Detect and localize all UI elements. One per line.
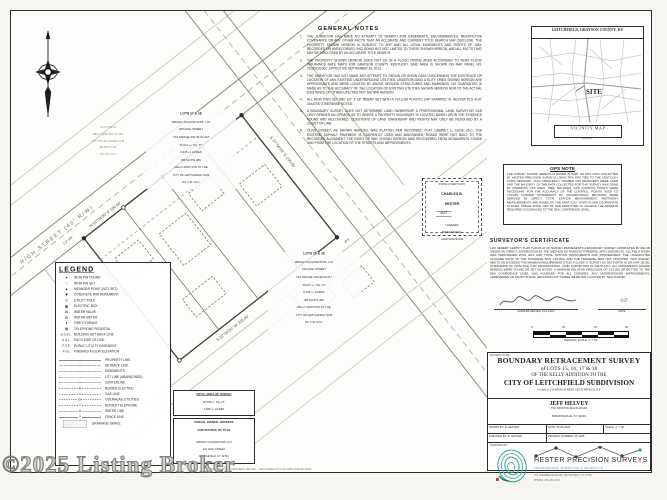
firm-name: HESTER PRECISION SURVEYS xyxy=(534,457,648,464)
certificate-body: I DO HEREBY CERTIFY THAT THIS PLAT OF SU… xyxy=(490,247,650,280)
gps-note-body: THE SURVEY SHOWN HEREON IS BASED IN PART… xyxy=(507,173,618,212)
firm-phone: PHONE: 270-230-7347 xyxy=(534,479,667,482)
fingerprint-logo-icon xyxy=(493,448,531,484)
bearing-front-left: N 52°04'00" E 100.00' xyxy=(88,200,122,228)
title-line-4: CITY OF LEITCHFIELD SUBDIVISION xyxy=(488,379,650,387)
title-line-2: of LOTS 15, 16, 17 & 18 xyxy=(488,366,650,372)
north-arrow-icon xyxy=(28,28,68,120)
title-line-3: OF THE KELLY ADDITION TO THE xyxy=(488,373,650,378)
legend-swale-row: DRAINAGE SWALE xyxy=(59,420,171,428)
watermark: ©2025 Listing Broker xyxy=(2,452,236,478)
project-number-cell: PROJECT NUMBER: 25-1085 xyxy=(547,433,650,442)
parcel-block-lots-15-16: LOTS 15 & 16 WRIGHT ACQUISITIONS, LLC 21… xyxy=(268,252,360,329)
street-label: HIGH STREET (40' R/W) xyxy=(19,204,95,265)
legend: LEGEND ●IRON PIN FOUND ○IRON PIN SET ▲ME… xyxy=(55,262,171,466)
signature-icon xyxy=(498,294,578,308)
total-area-box: TOTAL AREA OF SURVEY 30,030 +/- SQ. FT. … xyxy=(173,390,255,416)
vicinity-map: LEITCHFIELD, GRAYSON COUNTY, KY SITE VIC… xyxy=(531,26,644,146)
firm-address: 217 COMMERCE DRIVE, LEITCHFIELD, KY 4275… xyxy=(534,474,667,477)
signer-name: CHARLES HESTER, PLS #4147 xyxy=(494,310,578,314)
vicinity-scale-note: ( N.T.S. ) xyxy=(572,137,602,141)
general-notes-title: GENERAL NOTES xyxy=(318,26,482,32)
client-addr-1: 752 WINSTON DAVIS ROAD xyxy=(488,407,650,411)
vicinity-streets: SITE xyxy=(532,39,641,123)
scale-caption: GRAPHIC SCALE: 1" = 30' xyxy=(533,339,629,343)
parcel-block-adjoiner: LOTS 19 & 20 KELLY ADDITION TO THE CITY … xyxy=(78,126,138,160)
client-addr-2: BROWNSVILLE, KY 42210 xyxy=(488,415,650,419)
date-label: DATE xyxy=(598,310,646,314)
vicinity-header: LEITCHFIELD, GRAYSON COUNTY, KY xyxy=(532,27,643,39)
date-value: 6/25 xyxy=(604,298,644,309)
project-name-label: PROJECT NAME: xyxy=(490,354,652,357)
bearing-side-right: S 37°56'00" E 150.00' xyxy=(269,135,297,169)
gps-note: GPS NOTE THE SURVEY SHOWN HEREON IS BASE… xyxy=(503,164,622,225)
title-line-5: located at 210 HIGH STREET, LEITCHFIELD,… xyxy=(488,388,650,392)
parcel-block-lots-17-18: LOTS 17 & 18 WRIGHT ACQUISITIONS, LLC 20… xyxy=(146,112,236,189)
drawn-by-cell: DRAWN BY: B. HESTER xyxy=(488,424,547,433)
scale-cell: SCALE: 1" = 30' xyxy=(604,424,650,433)
general-note: 1. THE SURVEYOR HAS MADE NO ATTEMPT TO S… xyxy=(300,35,482,56)
survey-plat-sheet: HIGH STREET (40' R/W) xyxy=(0,0,667,500)
title-block: PROJECT NAME: BOUNDARY RETRACEMENT SURVE… xyxy=(487,352,651,471)
general-note: 5. A BOUNDARY SURVEY DOES NOT DETERMINE … xyxy=(300,109,482,126)
general-note: 4. ALL IRON PINS SET ARE 1/2" X 18" REBA… xyxy=(300,98,482,106)
title-line-1: BOUNDARY RETRACEMENT SURVEY xyxy=(488,356,650,365)
graphic-scale: 0' 30' 60' 90' GRAPHIC SCALE: 1" = 30' xyxy=(533,326,629,347)
checked-by-cell: CHECKED BY: B. HESTER xyxy=(488,433,547,442)
legend-title: LEGEND xyxy=(59,265,171,273)
pin-label-1: 1/2" IPF xyxy=(62,235,74,246)
general-note: 6. OLIVE STREET, AS SHOWN HEREON, WAS PL… xyxy=(300,129,482,146)
footer-file-path: K:\PROJECTS\25-1085 JEFF HELVEY - LEITCH… xyxy=(208,468,667,472)
drainage-swale-swatch xyxy=(63,420,87,427)
certificate-title: SURVEYOR'S CERTIFICATE xyxy=(490,238,650,244)
site-label: SITE xyxy=(586,88,602,96)
scale-bar xyxy=(533,331,629,338)
general-note: 3. THE SURVEYOR HAS NOT MADE ANY ATTEMPT… xyxy=(300,74,482,95)
date-cell: DATE: 06-06-2025 xyxy=(547,424,604,433)
surveyor-stamp: STATE of KENTUCKY CHARLES B. HESTER 4147… xyxy=(422,178,482,236)
general-note: 2. THE PROPERTY SHOWN HEREON DOES NOT LI… xyxy=(300,59,482,71)
